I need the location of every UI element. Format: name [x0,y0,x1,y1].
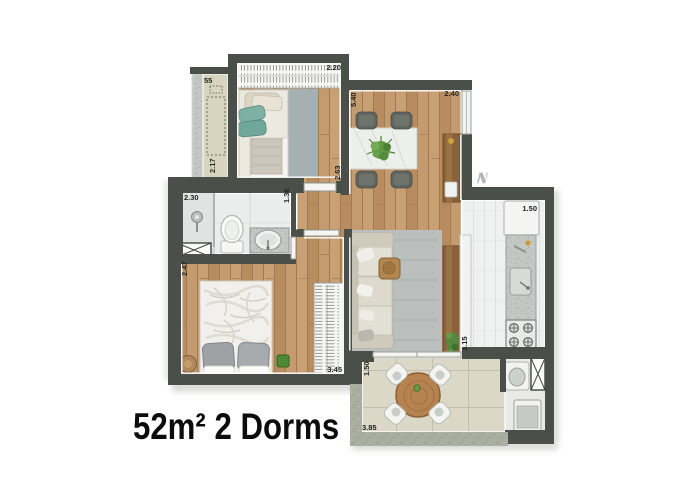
svg-text:3.45: 3.45 [327,365,342,374]
svg-text:1.50: 1.50 [522,204,537,213]
svg-text:2.40: 2.40 [444,89,459,98]
svg-text:52m² 2 Dorms: 52m² 2 Dorms [133,407,339,448]
svg-text:3.85: 3.85 [362,423,377,432]
svg-text:2.63: 2.63 [333,165,342,180]
svg-text:2.17: 2.17 [208,158,217,173]
svg-text:1.50: 1.50 [362,361,371,376]
svg-text:3.15: 3.15 [460,336,469,351]
svg-text:2.30: 2.30 [184,193,199,202]
svg-text:1.36: 1.36 [282,188,291,203]
svg-text:5.40: 5.40 [349,92,358,107]
svg-text:2.47: 2.47 [180,261,189,276]
svg-text:2.20: 2.20 [326,63,341,72]
svg-text:55: 55 [204,76,212,85]
